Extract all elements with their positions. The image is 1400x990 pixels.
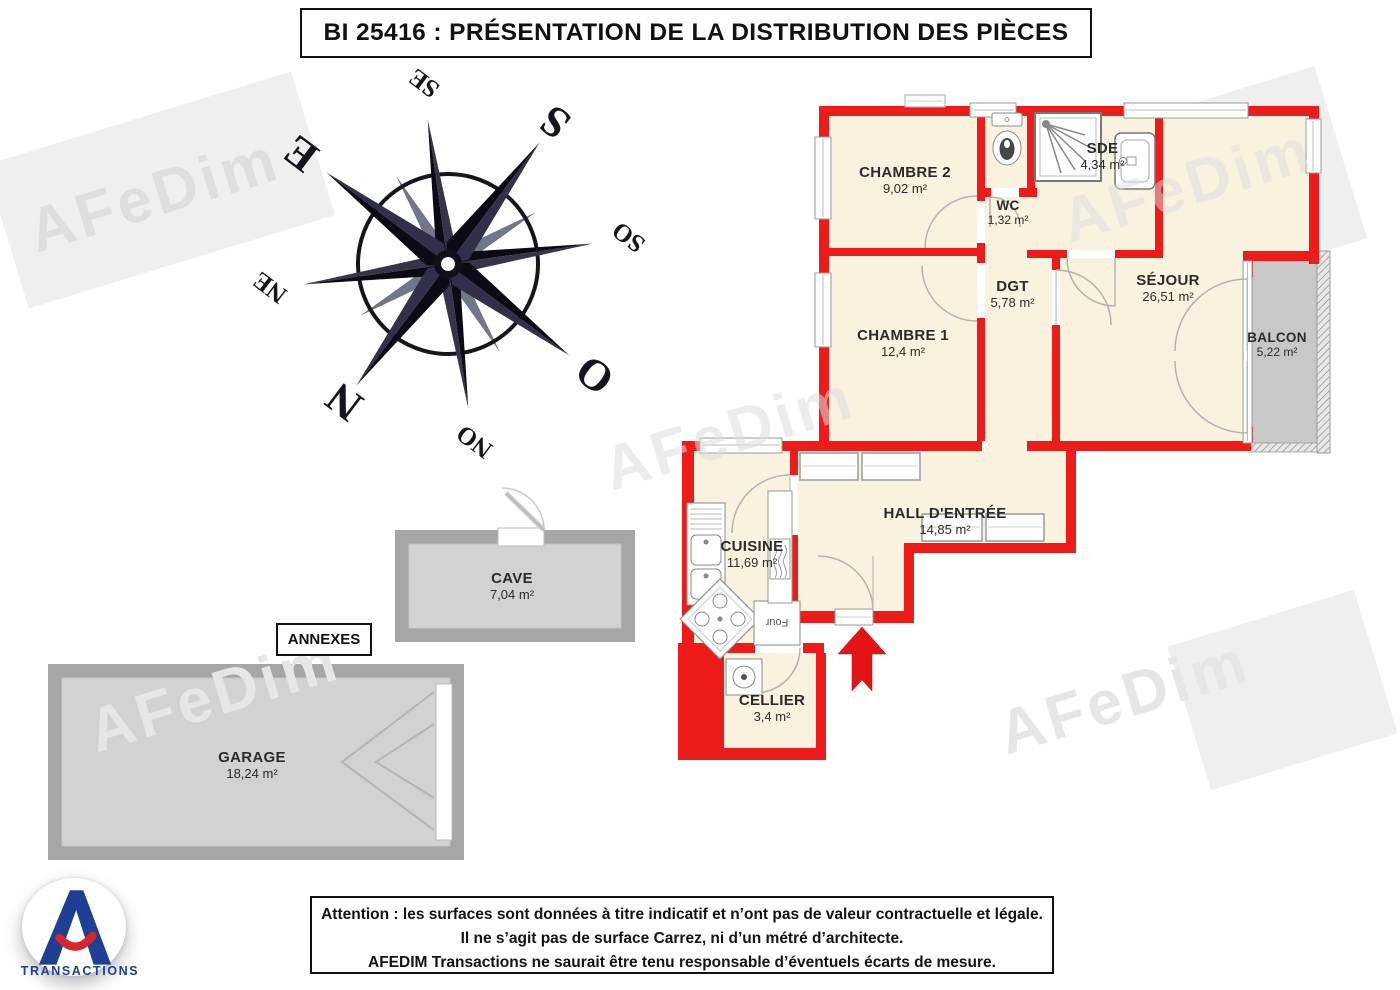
- room-label-sejour: SÉJOUR 26,51 m²: [1093, 272, 1243, 304]
- disclaimer-line-3: AFEDIM Transactions ne saurait être tenu…: [312, 951, 1052, 975]
- washing-machine-icon: [726, 659, 762, 695]
- disclaimer-line-2: Il ne s’agit pas de surface Carrez, ni d…: [312, 927, 1052, 951]
- disclaimer-box: Attention : les surfaces sont données à …: [310, 896, 1054, 974]
- entrance-arrow-icon: [838, 627, 886, 691]
- page-title: BI 25416 : PRÉSENTATION DE LA DISTRIBUTI…: [300, 8, 1092, 58]
- garage-door-strip: [436, 684, 452, 840]
- compass-label-no: NO: [452, 419, 498, 463]
- cave-door-gap: [498, 528, 544, 546]
- room-label-cuisine: CUISINE 11,69 m²: [692, 538, 812, 570]
- toilet-icon: [992, 113, 1022, 165]
- cave-plan: [393, 478, 638, 645]
- compass-label-s: S: [530, 95, 579, 149]
- afedim-logo-mark: [22, 878, 126, 976]
- room-label-hall: HALL D'ENTRÉE 14,85 m²: [870, 505, 1020, 537]
- afedim-logo: [22, 878, 126, 976]
- floor-plan-page: BI 25416 : PRÉSENTATION DE LA DISTRIBUTI…: [0, 0, 1400, 990]
- compass-label-so: SO: [607, 216, 650, 258]
- room-label-garage: GARAGE 18,24 m²: [182, 749, 322, 781]
- apartment-plan: Four: [672, 93, 1332, 765]
- oven-label: Four: [765, 616, 788, 628]
- room-label-wc: WC 1,32 m²: [973, 198, 1043, 227]
- annexes-title-text: ANNEXES: [288, 631, 361, 648]
- room-label-balcon: BALCON 5,22 m²: [1232, 330, 1322, 359]
- room-label-cellier: CELLIER 3,4 m²: [722, 692, 822, 724]
- compass-label-ne: NE: [248, 266, 292, 308]
- compass-rose: N S E O NE SE SO NO: [248, 78, 648, 458]
- room-label-chambre2: CHAMBRE 2 9,02 m²: [830, 164, 980, 196]
- page-title-text: BI 25416 : PRÉSENTATION DE LA DISTRIBUTI…: [324, 19, 1069, 47]
- room-label-chambre1: CHAMBRE 1 12,4 m²: [828, 327, 978, 359]
- room-label-cave: CAVE 7,04 m²: [452, 570, 572, 602]
- afedim-logo-wordmark: TRANSACTIONS: [10, 964, 150, 978]
- compass-label-se: SE: [404, 63, 445, 103]
- disclaimer-line-1: Attention : les surfaces sont données à …: [312, 903, 1052, 927]
- compass-label-o: O: [566, 345, 623, 405]
- compass-label-n: N: [317, 373, 372, 431]
- compass-label-e: E: [274, 125, 327, 182]
- annexes-title: ANNEXES: [276, 623, 372, 656]
- room-label-sde: SDE 4,34 m²: [1060, 140, 1145, 172]
- room-label-dgt: DGT 5,78 m²: [965, 278, 1060, 310]
